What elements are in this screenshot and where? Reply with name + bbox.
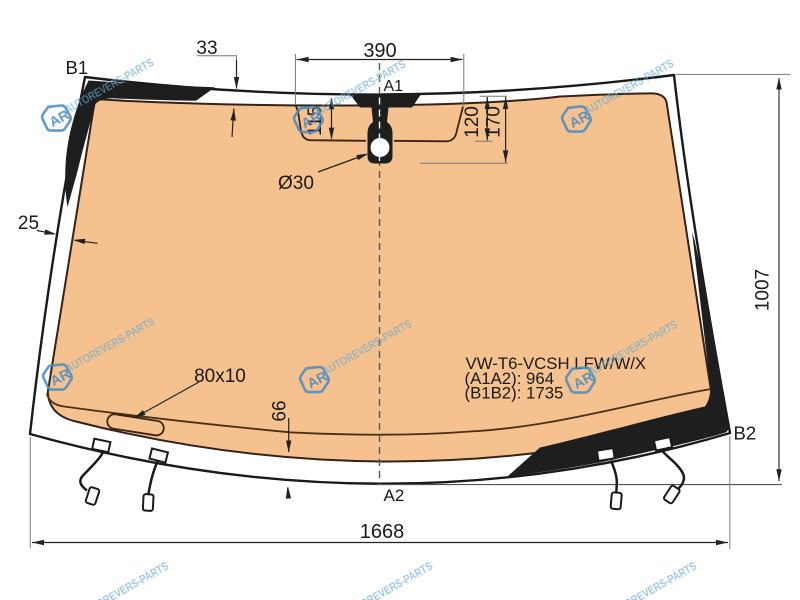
- svg-text:(B1B2): 1735: (B1B2): 1735: [465, 383, 564, 402]
- svg-text:25: 25: [18, 213, 39, 234]
- svg-text:390: 390: [363, 40, 396, 62]
- svg-text:1668: 1668: [360, 521, 405, 543]
- svg-text:B1: B1: [66, 57, 89, 78]
- svg-text:A2: A2: [384, 486, 405, 505]
- svg-text:120: 120: [462, 106, 483, 138]
- svg-text:66: 66: [270, 400, 291, 421]
- svg-text:Ø30: Ø30: [278, 173, 314, 194]
- svg-text:1007: 1007: [753, 269, 774, 311]
- svg-text:80x10: 80x10: [194, 366, 246, 387]
- svg-text:B2: B2: [734, 423, 757, 444]
- svg-text:170: 170: [484, 106, 505, 138]
